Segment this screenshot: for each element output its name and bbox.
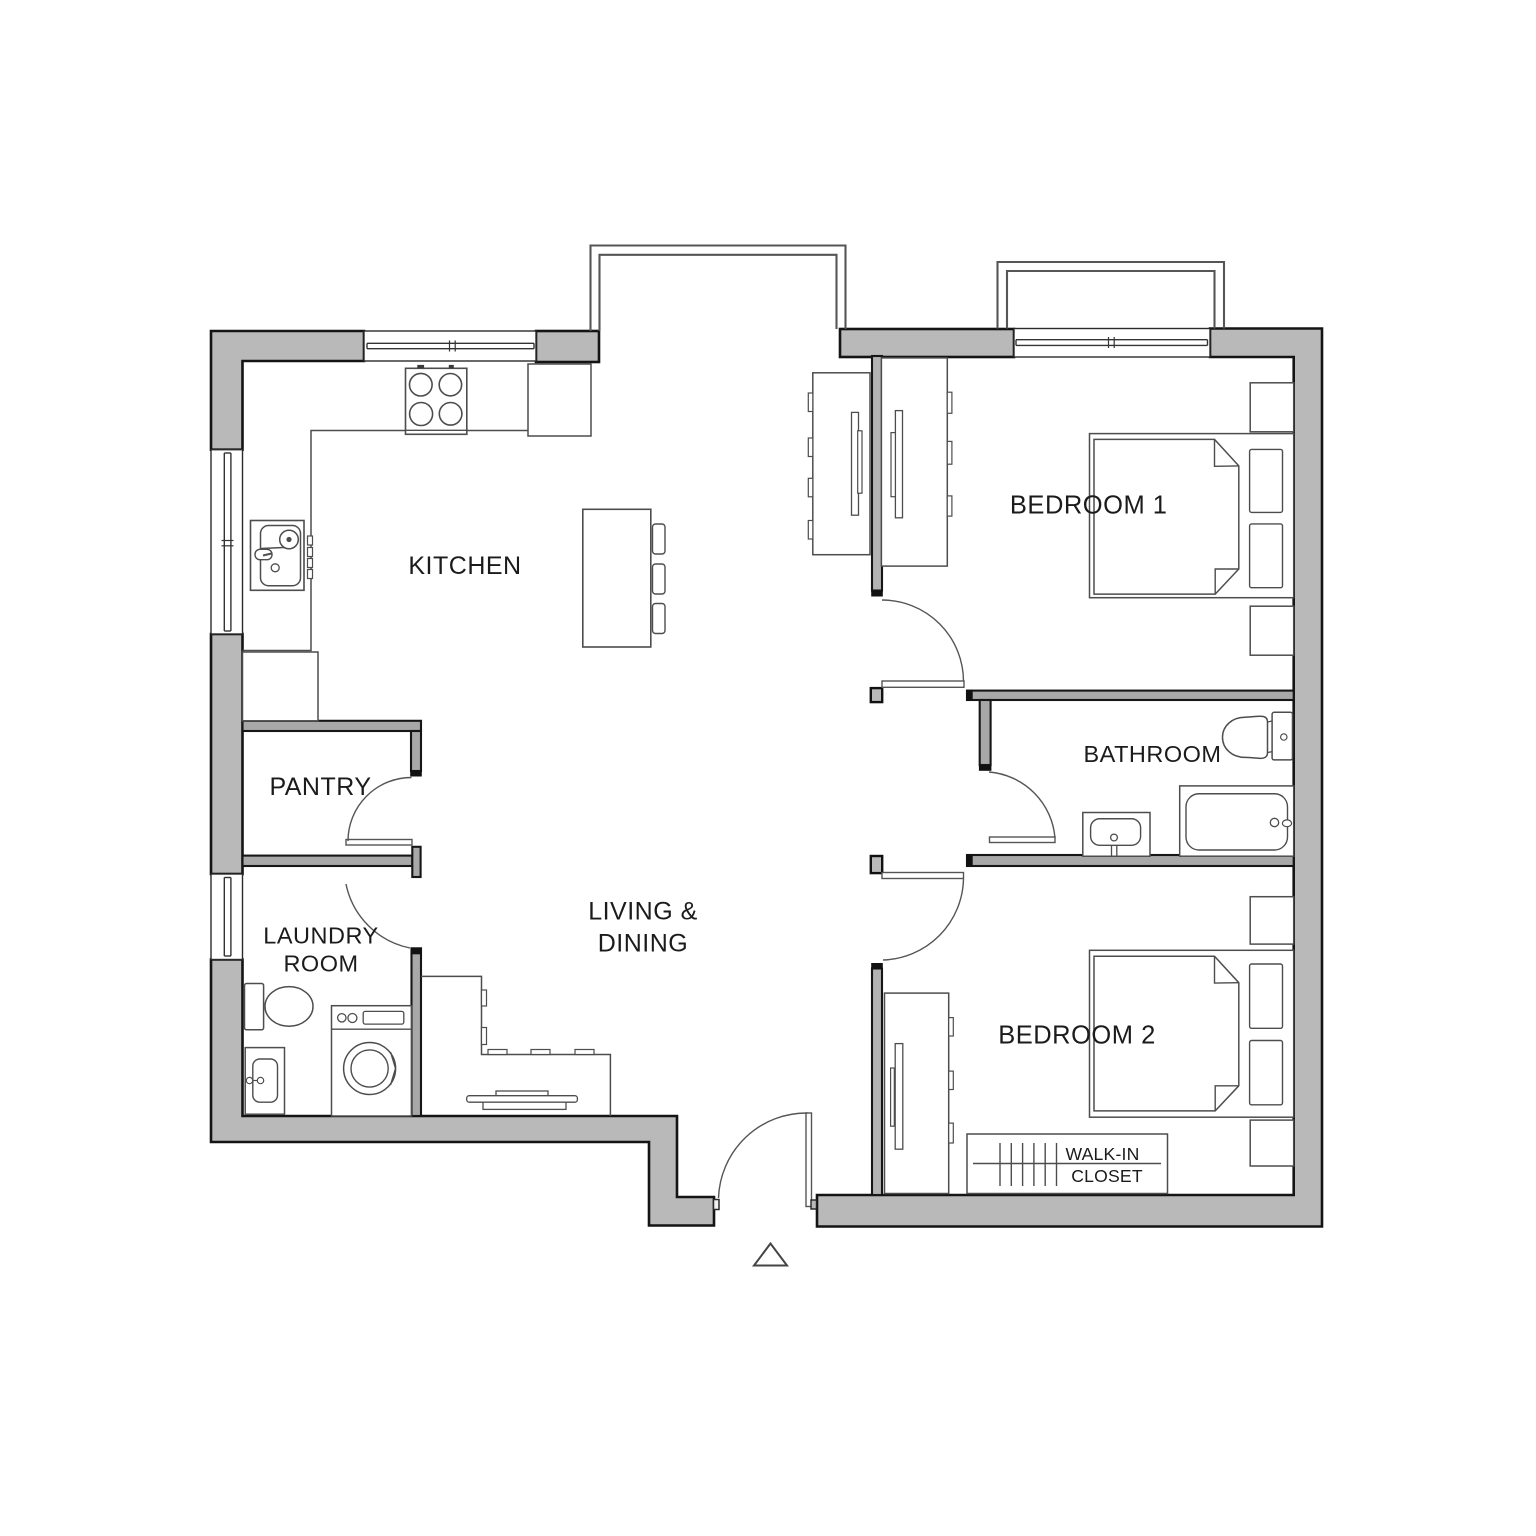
svg-text:PANTRY: PANTRY xyxy=(269,773,371,801)
svg-text:LIVING &: LIVING & xyxy=(588,898,698,926)
svg-text:CLOSET: CLOSET xyxy=(1071,1166,1143,1186)
svg-text:BEDROOM 1: BEDROOM 1 xyxy=(1010,492,1168,520)
svg-text:WALK-IN: WALK-IN xyxy=(1065,1144,1139,1164)
svg-text:BATHROOM: BATHROOM xyxy=(1083,741,1221,767)
svg-text:ROOM: ROOM xyxy=(283,951,358,977)
svg-text:DINING: DINING xyxy=(598,930,689,958)
svg-text:KITCHEN: KITCHEN xyxy=(408,552,521,580)
svg-text:LAUNDRY: LAUNDRY xyxy=(263,923,378,949)
svg-text:BEDROOM 2: BEDROOM 2 xyxy=(998,1022,1156,1050)
